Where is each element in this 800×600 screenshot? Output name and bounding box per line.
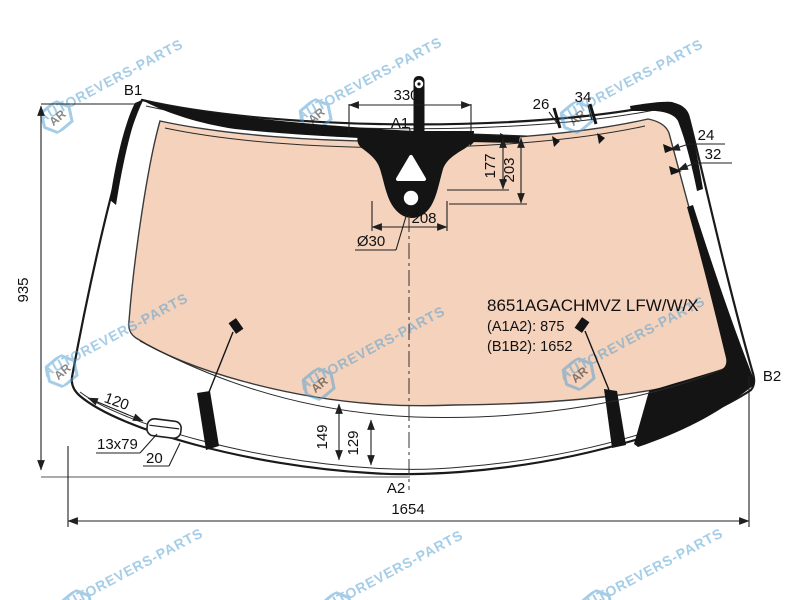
drawing-ink-layer: 935 330 A1 26 34 24 32 177 203 208 (0, 0, 800, 600)
band-tick-26 (554, 108, 560, 128)
dim-34-label: 34 (575, 89, 592, 106)
dim-hole-leader (396, 213, 407, 250)
dim-24-leader (670, 144, 689, 150)
antenna-wire-left (209, 332, 233, 392)
dim-24-label: 24 (698, 127, 715, 144)
dim-177-label: 177 (482, 153, 499, 178)
edge-wedge-1 (552, 136, 560, 147)
windshield-drawing: ARAUTOREVERS-PARTSARAUTOREVERS-PARTSARAU… (0, 0, 800, 600)
dim-20-label: 20 (146, 450, 163, 467)
dim-149-label: 149 (314, 424, 331, 449)
dim-1654-label: 1654 (391, 501, 424, 518)
point-b1-label: B1 (124, 82, 142, 99)
dim-pad-size-label: 13x79 (97, 436, 138, 453)
point-b2-label: B2 (763, 368, 781, 385)
dim-hole-label: Ø30 (357, 233, 385, 250)
antenna-connector-left (229, 318, 244, 334)
part-number: 8651AGACHMVZ LFW/W/X (487, 296, 699, 315)
wiper-mark-left (197, 391, 219, 450)
point-a2-label: A2 (387, 480, 405, 497)
sensor-rod-eyelet-dot (417, 82, 420, 85)
wiper-mark-right (604, 389, 626, 448)
dim-203-label: 203 (501, 157, 518, 182)
mirror-pad (146, 418, 182, 439)
dim-20-leader (169, 443, 180, 466)
dim-26-label: 26 (533, 96, 550, 113)
antenna-wire-right (585, 331, 609, 390)
lower-band-line (140, 341, 723, 417)
dim-208-label: 208 (411, 210, 436, 227)
frit-left-wedge (110, 100, 142, 205)
edge-wedge-32 (669, 166, 682, 175)
dim-935-label: 935 (15, 277, 32, 302)
frit-bottom-right-band (634, 205, 754, 447)
dim-120-label: 120 (102, 390, 131, 415)
part-dim-a1a2: (A1A2): 875 (487, 319, 564, 335)
dim-129-label: 129 (345, 430, 362, 455)
part-dim-b1b2: (B1B2): 1652 (487, 339, 572, 355)
sensor-mount-hole (404, 191, 418, 205)
point-a1-label: A1 (391, 115, 409, 132)
dim-32-label: 32 (705, 146, 722, 163)
edge-wedge-2 (597, 133, 605, 144)
antenna-connector-right (575, 317, 590, 333)
dim-330-label: 330 (393, 87, 418, 104)
